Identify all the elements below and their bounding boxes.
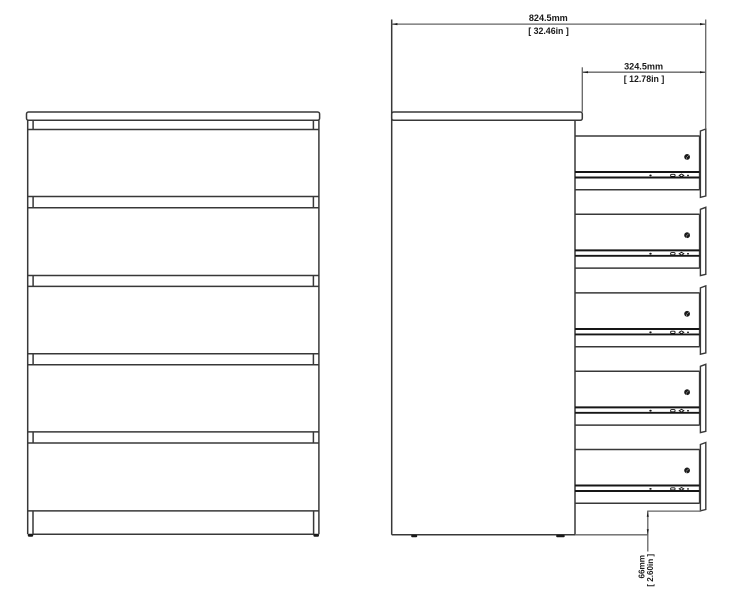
svg-text:[ 32.46in ]: [ 32.46in ] — [528, 26, 569, 36]
svg-text:824.5mm: 824.5mm — [529, 13, 568, 23]
svg-text:324.5mm: 324.5mm — [624, 61, 663, 71]
svg-text:[ 12.78in ]: [ 12.78in ] — [624, 74, 665, 84]
svg-text:[ 2.60in ]: [ 2.60in ] — [646, 554, 655, 587]
